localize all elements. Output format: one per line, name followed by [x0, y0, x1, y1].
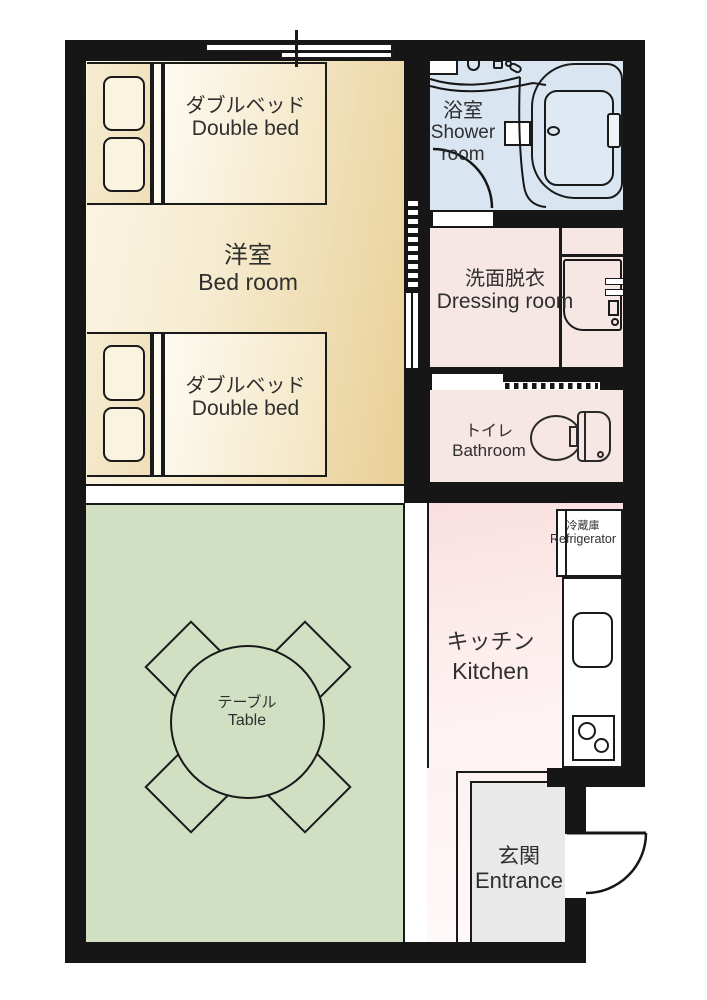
refrigerator-label: 冷蔵庫 Refrigerator [538, 520, 628, 546]
toilet-label: トイレ Bathroom [443, 423, 535, 460]
toilet-label-en: Bathroom [452, 441, 526, 460]
shower-label: 浴室 Shower room [426, 100, 500, 165]
entrance-door-arc [586, 833, 646, 893]
bed-bottom-label-en: Double bed [192, 397, 299, 421]
kitchen-label: キッチン Kitchen [408, 630, 573, 684]
entrance-label: 玄関 Entrance [459, 845, 579, 893]
kitchen-label-ja: キッチン [446, 630, 534, 655]
bath-platform-edge [519, 77, 546, 207]
bedroom-label: 洋室 Bed room [148, 243, 348, 296]
entrance-label-en: Entrance [475, 869, 563, 894]
bed-top-label-en: Double bed [192, 117, 299, 141]
bed-top-label-ja: ダブルベッド [186, 95, 306, 117]
refrigerator-label-ja: 冷蔵庫 [567, 520, 600, 532]
floor-plan: ダブルベッド Double bed ダブルベッド Double bed テーブル… [0, 0, 707, 1000]
dressing-label-ja: 洗面脱衣 [465, 268, 545, 290]
shower-label-en1: Shower [431, 122, 495, 143]
shower-label-ja: 浴室 [443, 100, 483, 122]
dressing-label: 洗面脱衣 Dressing room [420, 268, 590, 314]
shower-label-en2: room [441, 144, 484, 165]
bedroom-label-ja: 洋室 [224, 243, 272, 270]
shower-counter-curve [430, 77, 520, 85]
bed-bottom-label-ja: ダブルベッド [186, 375, 306, 397]
door-swing-overlay [0, 0, 707, 1000]
entrance-label-ja: 玄関 [498, 845, 540, 869]
kitchen-label-en: Kitchen [452, 659, 529, 685]
bedroom-label-en: Bed room [198, 270, 298, 296]
toilet-label-ja: トイレ [465, 423, 513, 441]
table-label-en: Table [228, 712, 266, 730]
dressing-label-en: Dressing room [437, 290, 574, 314]
table-label-ja: テーブル [217, 695, 276, 712]
refrigerator-label-en: Refrigerator [550, 532, 616, 546]
